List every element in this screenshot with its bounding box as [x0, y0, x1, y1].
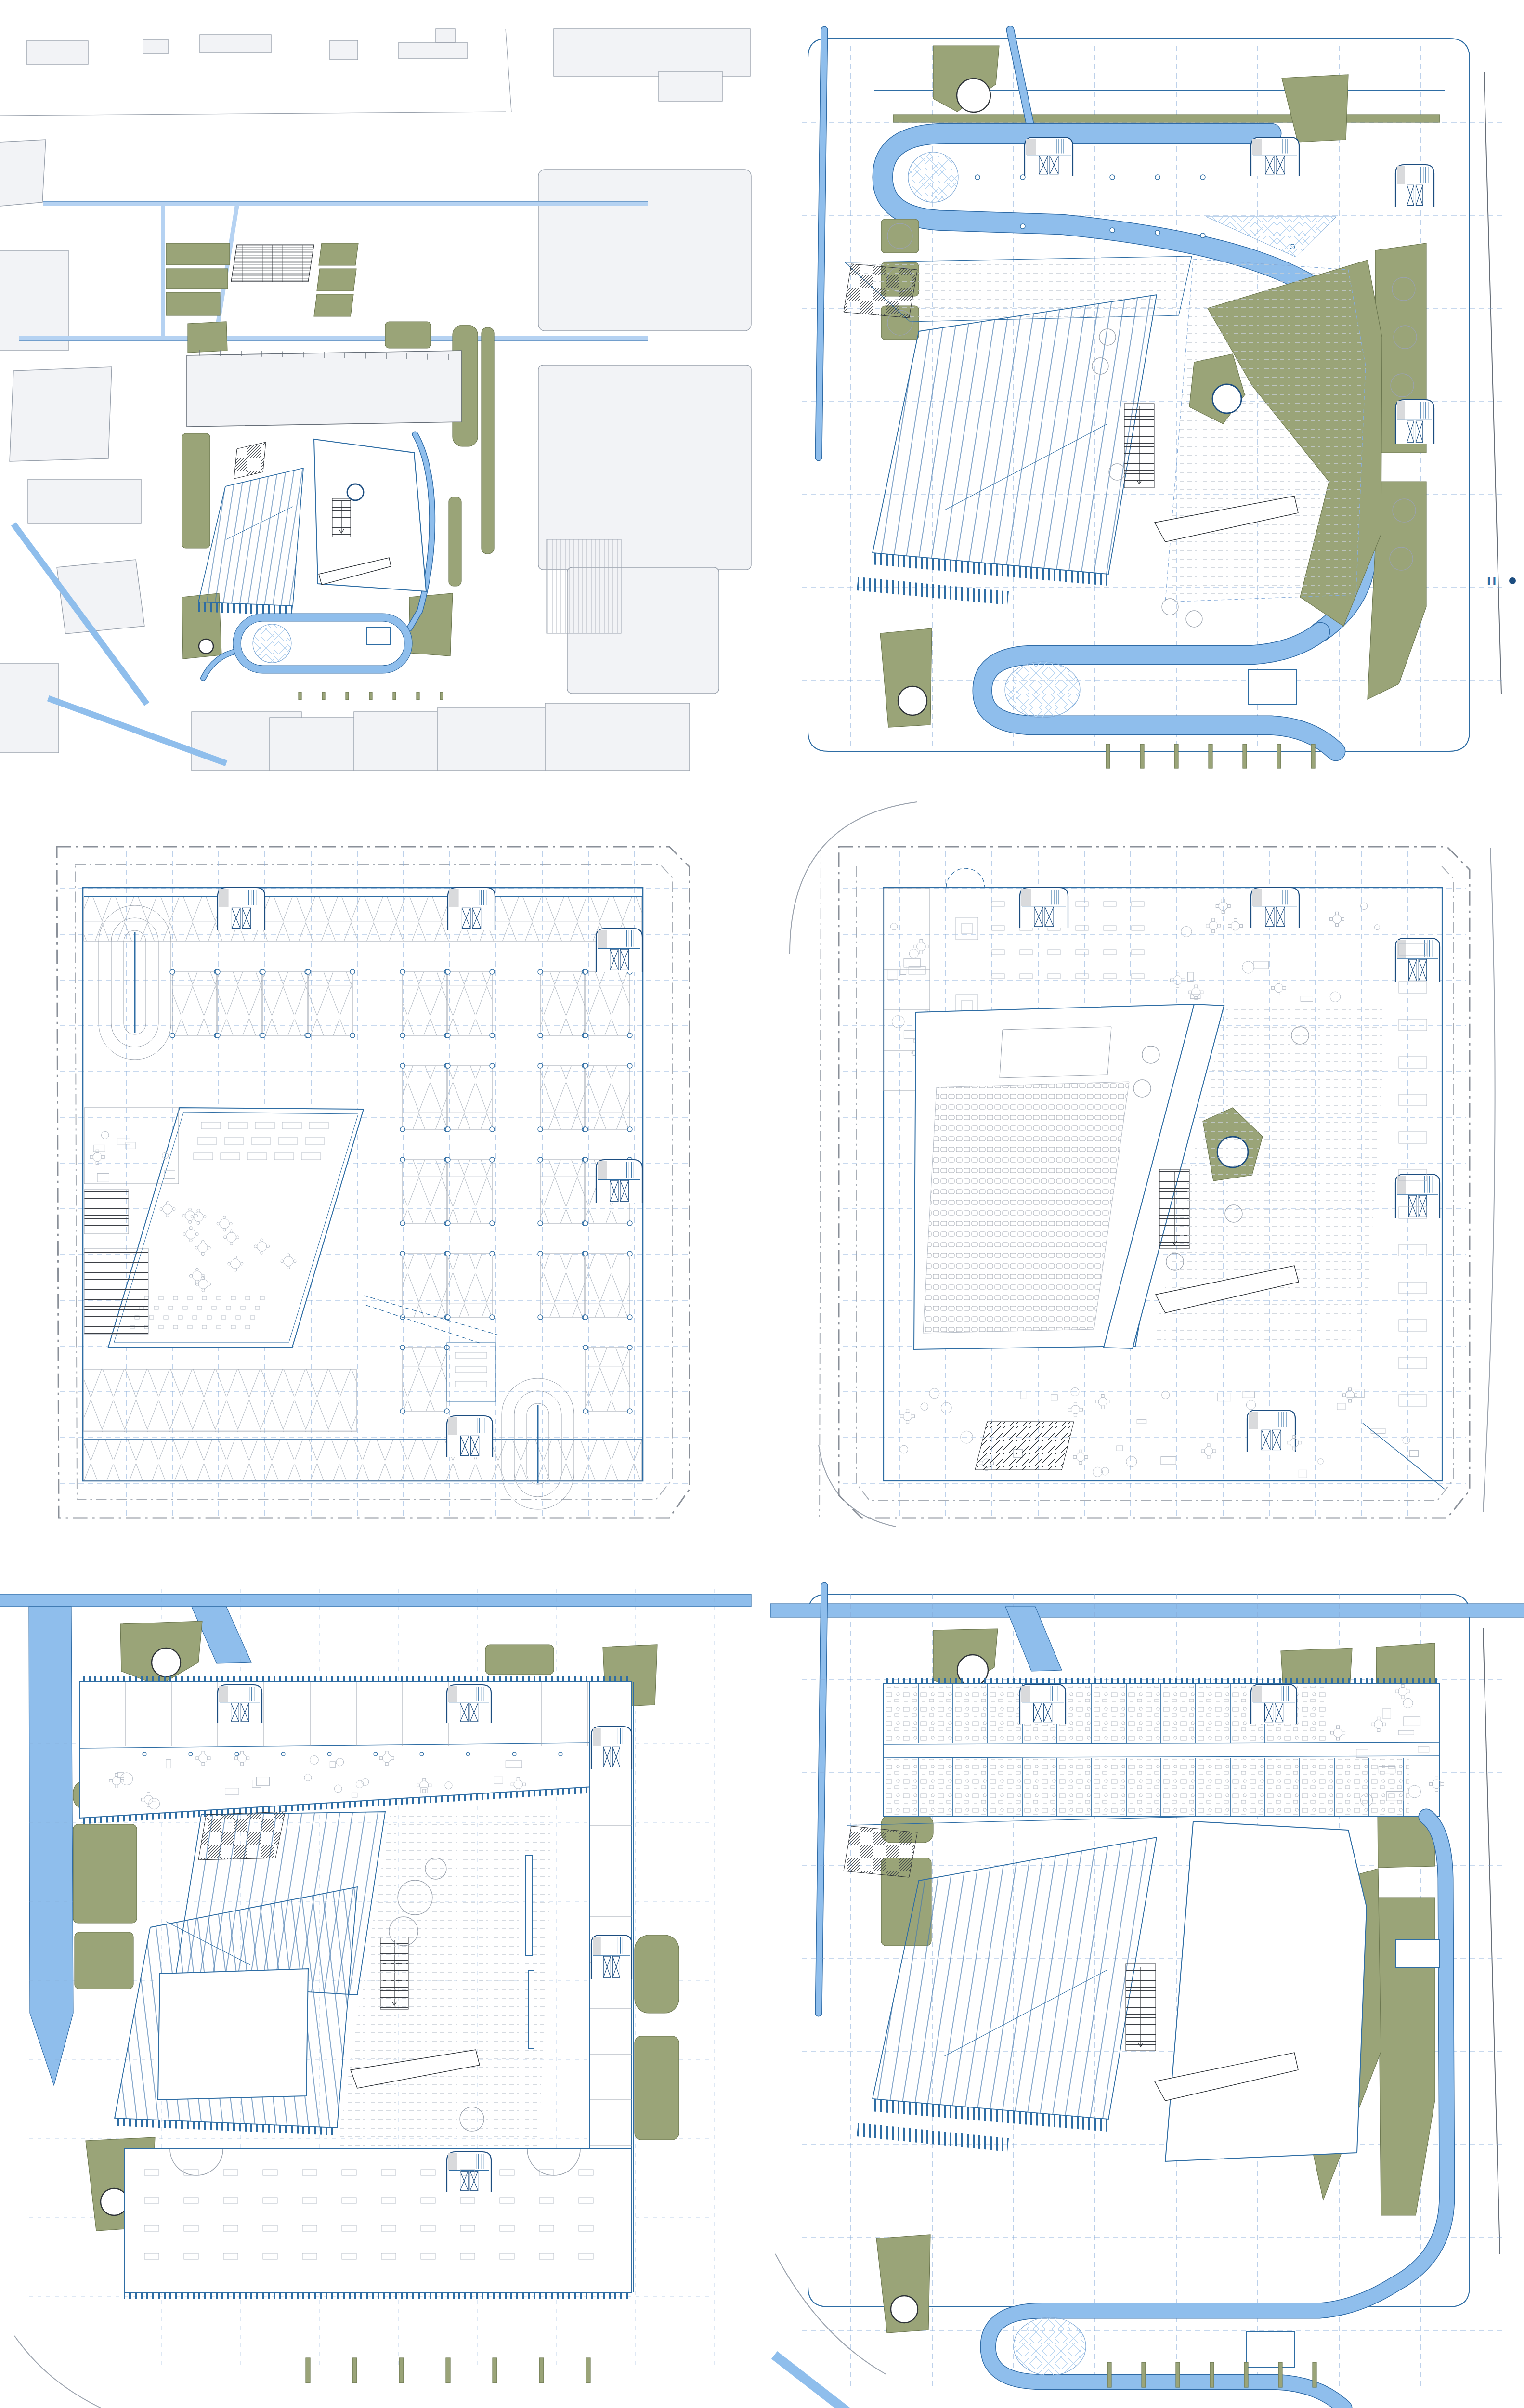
panel-ground-floor-plan — [790, 802, 1495, 1527]
panel-site-plan-detail — [770, 29, 1524, 771]
section-marker-label: II — [1487, 575, 1498, 587]
panel-basement-parking-plan — [57, 847, 690, 1518]
panel-upper-floor-plan-b — [770, 1584, 1524, 2408]
panel-upper-floor-plan-a — [0, 1584, 751, 2408]
panel-site-context-plan — [0, 29, 751, 771]
plan-sheet: II — [0, 0, 1524, 2408]
section-marker-dot — [1509, 577, 1516, 584]
